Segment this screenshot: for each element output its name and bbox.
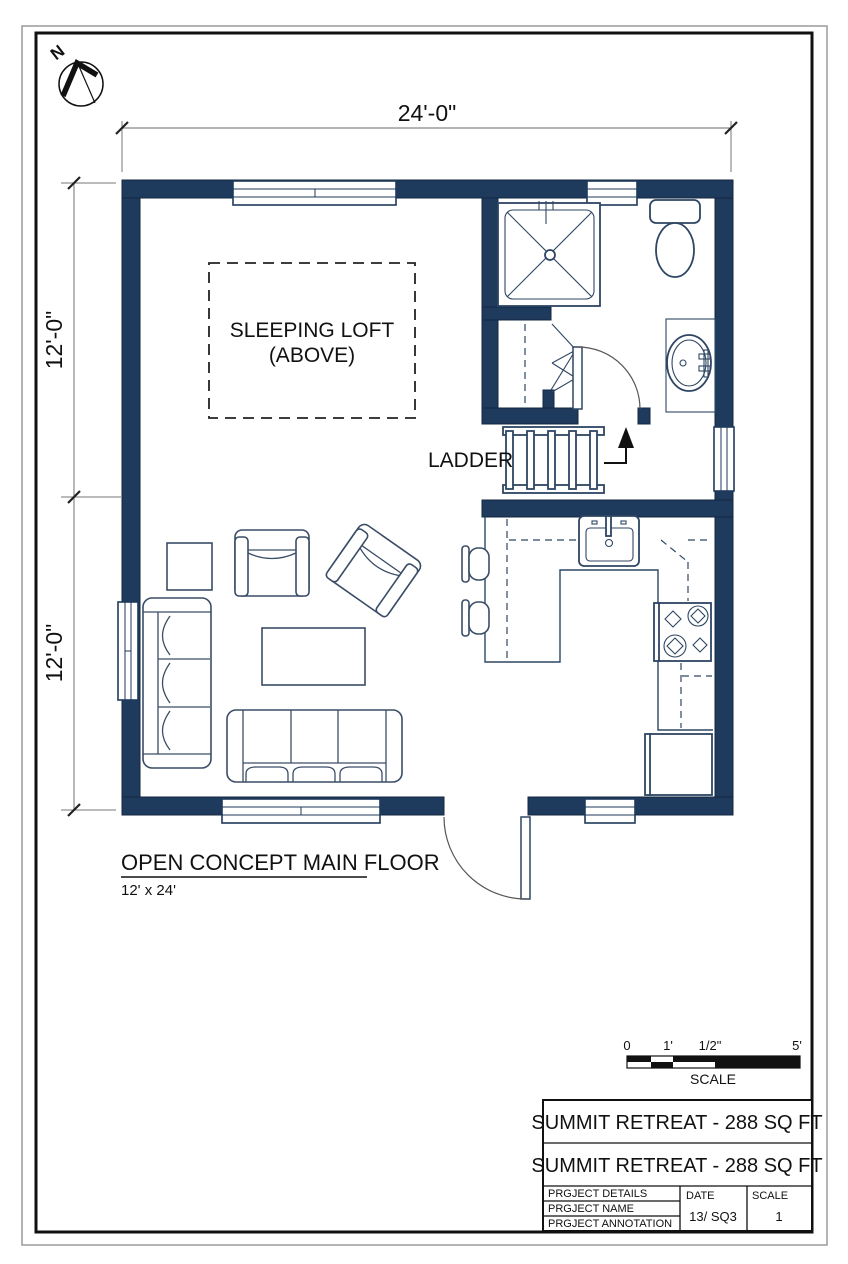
living-room	[143, 522, 423, 782]
window-left	[118, 602, 138, 700]
window-right	[714, 427, 734, 491]
exterior-walls	[122, 180, 733, 815]
end-table	[167, 543, 212, 590]
floor-title: OPEN CONCEPT MAIN FLOOR	[121, 850, 440, 875]
cell-date-label: DATE	[686, 1190, 715, 1202]
cell-project-name: PRGJECT NAME	[548, 1203, 634, 1215]
armchair	[235, 530, 309, 596]
dim-12ft-upper-label: 12'-0"	[41, 311, 67, 370]
scale-tick-2: 1/2"	[699, 1038, 722, 1053]
window-top-small	[587, 181, 637, 205]
floor-plan-drawing: N 24'-0" 12'-0" 12'-0"	[0, 0, 848, 1264]
floor-label: OPEN CONCEPT MAIN FLOOR 12' x 24'	[121, 850, 440, 899]
cell-scale-label: SCALE	[752, 1190, 788, 1202]
dim-12ft-lower-label: 12'-0"	[41, 624, 67, 683]
kitchen	[462, 516, 713, 795]
scale-label: SCALE	[690, 1071, 736, 1087]
scale-bar: 0 1' 1/2" 5' SCALE	[623, 1038, 801, 1087]
bar-stool	[462, 546, 489, 582]
sleeping-loft-label-line2: (ABOVE)	[269, 344, 355, 367]
north-label: N	[47, 41, 68, 64]
coffee-table	[262, 628, 365, 685]
scale-tick-3: 5'	[792, 1038, 802, 1053]
scale-tick-0: 0	[623, 1038, 630, 1053]
title-block: SUMMIT RETREAT - 288 SQ FT SUMMIT RETREA…	[531, 1100, 822, 1231]
window-bottom-small	[585, 799, 635, 823]
dimension-left: 12'-0" 12'-0"	[41, 177, 121, 816]
shower	[498, 201, 600, 306]
bathroom-door	[573, 347, 640, 409]
cell-project-annotation: PRGJECT ANNOTATION	[548, 1218, 672, 1230]
sleeping-loft-outline: SLEEPING LOFT (ABOVE)	[209, 263, 415, 418]
sofa-bottom	[227, 710, 402, 782]
up-arrow-icon	[604, 427, 634, 463]
window-bottom-large	[222, 799, 380, 823]
cell-date-value: 13/ SQ3	[689, 1209, 737, 1224]
vanity-sink	[666, 319, 715, 412]
dim-24ft-label: 24'-0"	[398, 100, 457, 126]
window-top-large	[233, 181, 396, 205]
bar-stool	[462, 600, 489, 636]
floor-plan-sheet: N 24'-0" 12'-0" 12'-0"	[0, 0, 848, 1264]
kitchen-sink	[579, 516, 639, 566]
refrigerator	[645, 734, 712, 795]
armchair-angled	[325, 522, 423, 619]
ladder-label: LADDER	[428, 449, 513, 472]
north-arrow-icon: N	[47, 41, 103, 106]
sleeping-loft-label-line1: SLEEPING LOFT	[230, 319, 395, 342]
ladder: LADDER	[428, 427, 634, 493]
dimension-top: 24'-0"	[116, 100, 737, 172]
cell-scale-value: 1	[775, 1209, 782, 1224]
floor-size: 12' x 24'	[121, 882, 176, 899]
sofa-left	[143, 598, 211, 768]
toilet	[650, 200, 700, 277]
cell-project-details: PRGJECT DETAILS	[548, 1188, 647, 1200]
scale-tick-1: 1'	[663, 1038, 673, 1053]
project-title-row2: SUMMIT RETREAT - 288 SQ FT	[531, 1155, 822, 1177]
bathroom	[498, 200, 715, 412]
entry-door	[444, 817, 530, 899]
stove	[654, 603, 711, 661]
project-title-row1: SUMMIT RETREAT - 288 SQ FT	[531, 1112, 822, 1134]
